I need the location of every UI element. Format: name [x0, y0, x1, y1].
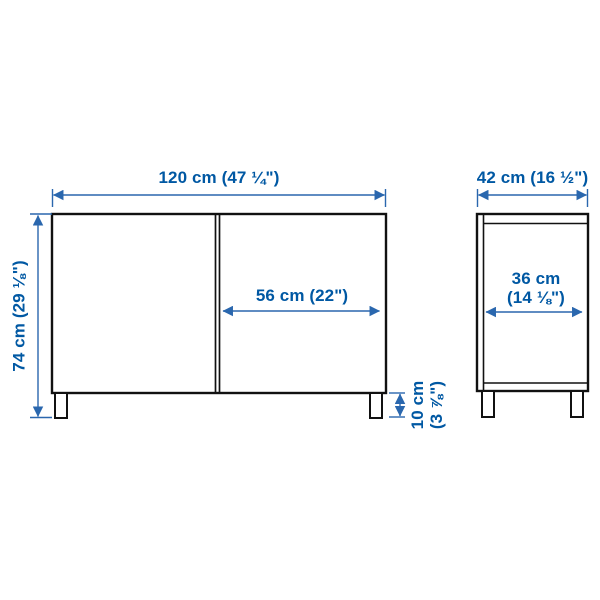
leg-height-label: 10 cm (3 ⅞")	[408, 381, 446, 430]
front-left-leg	[55, 393, 67, 418]
door-width-label: 56 cm (22")	[222, 286, 382, 305]
side-view	[477, 214, 588, 417]
dim-overall-width-arrow	[53, 189, 386, 207]
front-right-leg	[370, 393, 382, 418]
side-right-leg	[571, 391, 583, 417]
dim-leg-height-arrow	[389, 393, 405, 417]
dim-depth-arrow	[478, 189, 588, 207]
inner-depth-label-line1: 36 cm	[480, 269, 592, 288]
inner-depth-label: 36 cm (14 ⅛")	[480, 269, 592, 307]
furniture-dimension-diagram: 120 cm (47 ¼") 74 cm (29 ⅛") 56 cm (22")…	[0, 0, 600, 600]
depth-label: 42 cm (16 ½")	[476, 168, 589, 187]
side-left-leg	[482, 391, 494, 417]
dim-overall-height-arrow	[30, 214, 52, 418]
leg-height-label-line2: (3 ⅞")	[427, 381, 446, 430]
front-view	[52, 214, 386, 418]
overall-width-label: 120 cm (47 ¼")	[52, 168, 386, 187]
overall-height-label: 74 cm (29 ⅛")	[10, 260, 29, 371]
inner-depth-label-line2: (14 ⅛")	[480, 288, 592, 307]
leg-height-label-line1: 10 cm	[408, 381, 427, 430]
